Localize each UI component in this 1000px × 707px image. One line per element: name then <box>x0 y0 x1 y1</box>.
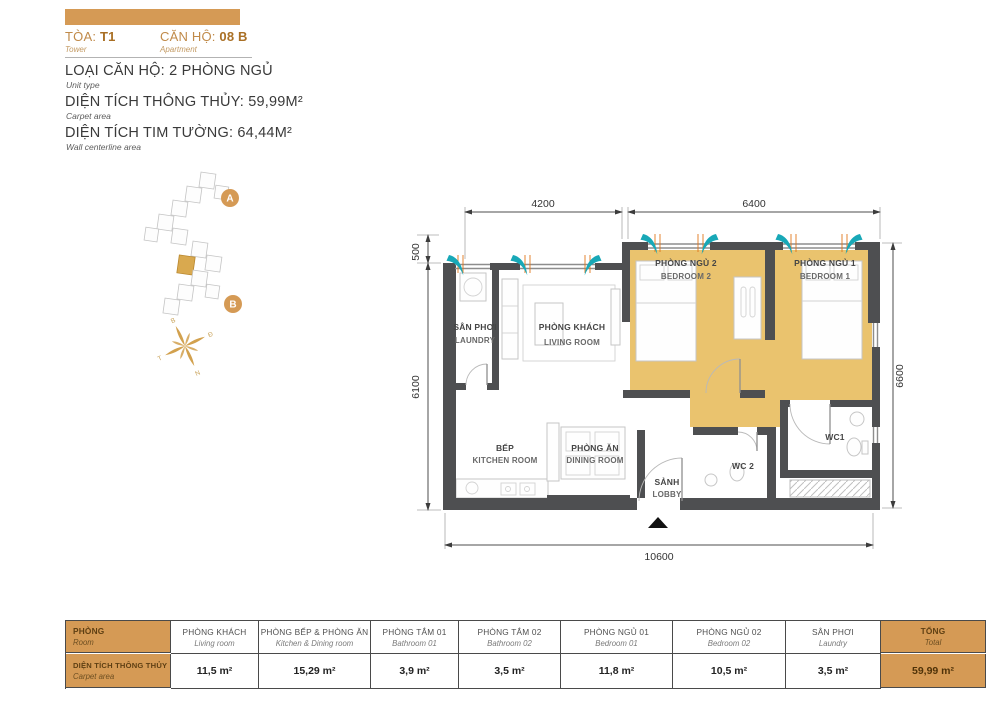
area-value-total: 59,99 m² <box>881 654 986 688</box>
room-label-bedroom1: PHÒNG NGỦ 1 <box>794 257 856 268</box>
area-value-bedroom1: 11,8 m² <box>561 654 673 689</box>
svg-text:Đ: Đ <box>207 331 214 339</box>
svg-text:LIVING ROOM: LIVING ROOM <box>544 338 600 347</box>
table-col-bedroom2: PHÒNG NGỦ 02 Bedroom 02 <box>673 621 786 654</box>
tower-sublabel: Tower <box>65 45 160 54</box>
floor-plan: 4200 6400 500 6100 6600 10600 SÂN PHƠI L… <box>405 195 915 570</box>
compass-icon: B Đ N T <box>145 305 227 390</box>
header-accent-bar <box>65 9 240 25</box>
area-value-laundry: 3,5 m² <box>786 654 881 689</box>
svg-text:A: A <box>226 194 233 205</box>
svg-text:DINING ROOM: DINING ROOM <box>566 456 623 465</box>
apartment-value: 08 B <box>219 29 247 44</box>
room-label-wc1: WC1 <box>825 432 845 442</box>
tower-badge-a: A <box>221 189 239 207</box>
tv-cabinet-icon <box>611 289 620 345</box>
apartment-sublabel: Apartment <box>160 45 280 54</box>
table-col-bathroom2: PHÒNG TẮM 02 Bathroom 02 <box>459 621 561 654</box>
room-label-living: PHÒNG KHÁCH <box>539 321 605 332</box>
area-value-bedroom2: 10,5 m² <box>673 654 786 689</box>
area-table: PHÒNG Room PHÒNG KHÁCH Living room PHÒNG… <box>65 620 986 689</box>
tower-footprint <box>144 172 229 315</box>
cabinet-icon <box>547 423 559 481</box>
svg-text:T: T <box>157 355 164 363</box>
header: TÒA: T1 Tower CĂN HỘ: 08 B Apartment LOẠ… <box>65 9 425 156</box>
tower-value: T1 <box>100 29 116 44</box>
unit-type: LOẠI CĂN HỘ: 2 PHÒNG NGỦ <box>65 63 425 79</box>
wardrobe-icon <box>734 277 761 339</box>
dim-left-top: 500 <box>410 243 422 261</box>
header-divider <box>65 57 252 58</box>
table-col-kitchen-dining: PHÒNG BẾP & PHÒNG ĂN Kitchen & Dining ro… <box>259 621 371 654</box>
dining-table-icon <box>561 427 625 479</box>
tower-location-map: A B B Đ N T <box>135 168 265 408</box>
svg-text:BEDROOM 1: BEDROOM 1 <box>800 272 851 281</box>
dim-bottom: 10600 <box>644 551 673 563</box>
svg-text:LAUNDRY: LAUNDRY <box>455 336 496 345</box>
tower-badge-b: B <box>224 295 242 313</box>
table-col-living: PHÒNG KHÁCH Living room <box>171 621 259 654</box>
room-label-bedroom2: PHÒNG NGỦ 2 <box>655 257 717 268</box>
toilet-icon <box>847 412 868 456</box>
area-value-bathroom1: 3,9 m² <box>371 654 459 689</box>
room-label-laundry: SÂN PHƠI <box>453 321 496 332</box>
tower-label: TÒA: T1 <box>65 29 160 44</box>
table-col-bathroom1: PHÒNG TẮM 01 Bathroom 01 <box>371 621 459 654</box>
table-col-bedroom1: PHÒNG NGỦ 01 Bedroom 01 <box>561 621 673 654</box>
svg-text:KITCHEN ROOM: KITCHEN ROOM <box>472 456 537 465</box>
dim-left: 6100 <box>410 375 422 399</box>
table-col-total: TỔNG Total <box>881 621 986 653</box>
washing-machine-icon <box>460 273 486 301</box>
dim-top-right: 6400 <box>742 198 766 210</box>
closet-icon <box>790 480 870 497</box>
svg-text:N: N <box>194 369 201 377</box>
table-row-area-cell: DIỆN TÍCH THÔNG THỦY Carpet area <box>66 654 171 688</box>
area-value-living: 11,5 m² <box>171 654 259 689</box>
room-label-dining: PHÒNG ĂN <box>571 442 618 453</box>
carpet-area: DIỆN TÍCH THÔNG THỦY: 59,99M² <box>65 94 425 110</box>
room-label-wc2: WC 2 <box>732 461 754 471</box>
apartment-label: CĂN HỘ: 08 B <box>160 29 280 44</box>
entry-marker-icon <box>648 517 668 528</box>
svg-text:LOBBY: LOBBY <box>653 490 682 499</box>
room-label-lobby: SẢNH <box>655 476 680 487</box>
svg-text:BEDROOM 2: BEDROOM 2 <box>661 272 712 281</box>
dim-right: 6600 <box>894 364 906 388</box>
dim-top-left: 4200 <box>531 198 555 210</box>
sofa-icon <box>502 279 518 359</box>
unit-type-sublabel: Unit type <box>66 80 425 90</box>
svg-text:B: B <box>229 300 236 311</box>
svg-text:B: B <box>170 317 177 325</box>
table-col-laundry: SÂN PHƠI Laundry <box>786 621 881 654</box>
wall-centerline-sublabel: Wall centerline area <box>66 142 425 152</box>
room-label-kitchen: BẾP <box>496 443 514 453</box>
page: TÒA: T1 Tower CĂN HỘ: 08 B Apartment LOẠ… <box>0 0 1000 707</box>
wall-centerline-area: DIỆN TÍCH TIM TƯỜNG: 64,44M² <box>65 125 425 141</box>
carpet-area-sublabel: Carpet area <box>66 111 425 121</box>
kitchen-counter-icon <box>456 479 548 498</box>
area-value-kitchen-dining: 15,29 m² <box>259 654 371 689</box>
table-row-header-cell: PHÒNG Room <box>66 621 171 653</box>
area-value-bathroom2: 3,5 m² <box>459 654 561 689</box>
